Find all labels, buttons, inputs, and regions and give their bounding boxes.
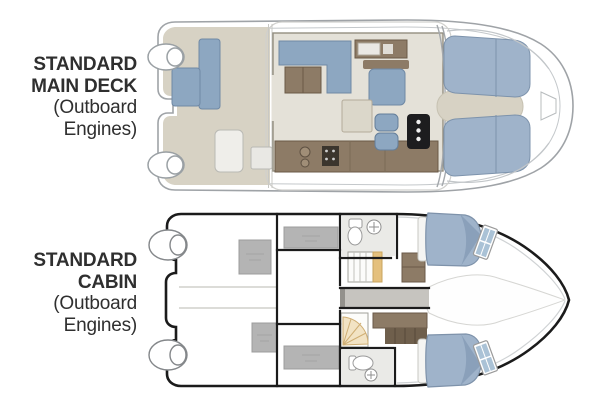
cockpit-table — [215, 130, 243, 172]
cabin-diagram — [145, 205, 575, 395]
galley-forward-counter — [355, 40, 407, 58]
cabin-outboard-engine-starboard — [149, 340, 187, 370]
starboard-stairs — [341, 313, 368, 347]
cabin-outboard-engine-port — [149, 230, 187, 260]
cabin-subtitle-line1: (Outboard — [10, 293, 137, 315]
port-toilet-icon — [348, 219, 362, 245]
cabin-title-line1: STANDARD — [10, 250, 137, 272]
cabin-title-line2: CABIN — [10, 272, 137, 294]
companion-seat — [363, 60, 409, 105]
main-deck-title-line2: MAIN DECK — [10, 76, 137, 98]
helm-console — [407, 114, 430, 149]
main-deck-diagram — [145, 13, 575, 199]
starboard-toilet-icon — [349, 356, 373, 370]
cabin-subtitle-line2: Engines) — [10, 315, 137, 337]
main-deck-title-line1: STANDARD — [10, 54, 137, 76]
island-berth-starboard — [418, 334, 481, 387]
island-berth-port — [418, 213, 481, 266]
salon-table — [342, 100, 372, 132]
main-deck-subtitle-line2: Engines) — [10, 119, 137, 141]
bow-sunpad-starboard — [444, 115, 530, 176]
galley-sink — [300, 147, 310, 157]
boat-floorplan-page: STANDARD MAIN DECK (Outboard Engines) ST… — [0, 0, 600, 400]
main-deck-subtitle-line1: (Outboard — [10, 97, 137, 119]
port-stairs — [348, 252, 382, 282]
port-shower-icon — [367, 220, 381, 234]
starboard-shower-icon — [365, 369, 377, 381]
companionway-corridor — [340, 289, 429, 308]
cabin-label: STANDARD CABIN (Outboard Engines) — [10, 250, 137, 336]
bow-sunpad-port — [444, 36, 530, 97]
salon-dinette — [279, 41, 351, 93]
salon-door-opening — [272, 75, 276, 121]
cockpit-locker — [251, 147, 272, 169]
galley-stove — [322, 146, 339, 166]
main-deck-label: STANDARD MAIN DECK (Outboard Engines) — [10, 54, 137, 140]
outboard-engine-starboard — [148, 152, 184, 178]
outboard-engine-port — [148, 44, 184, 70]
